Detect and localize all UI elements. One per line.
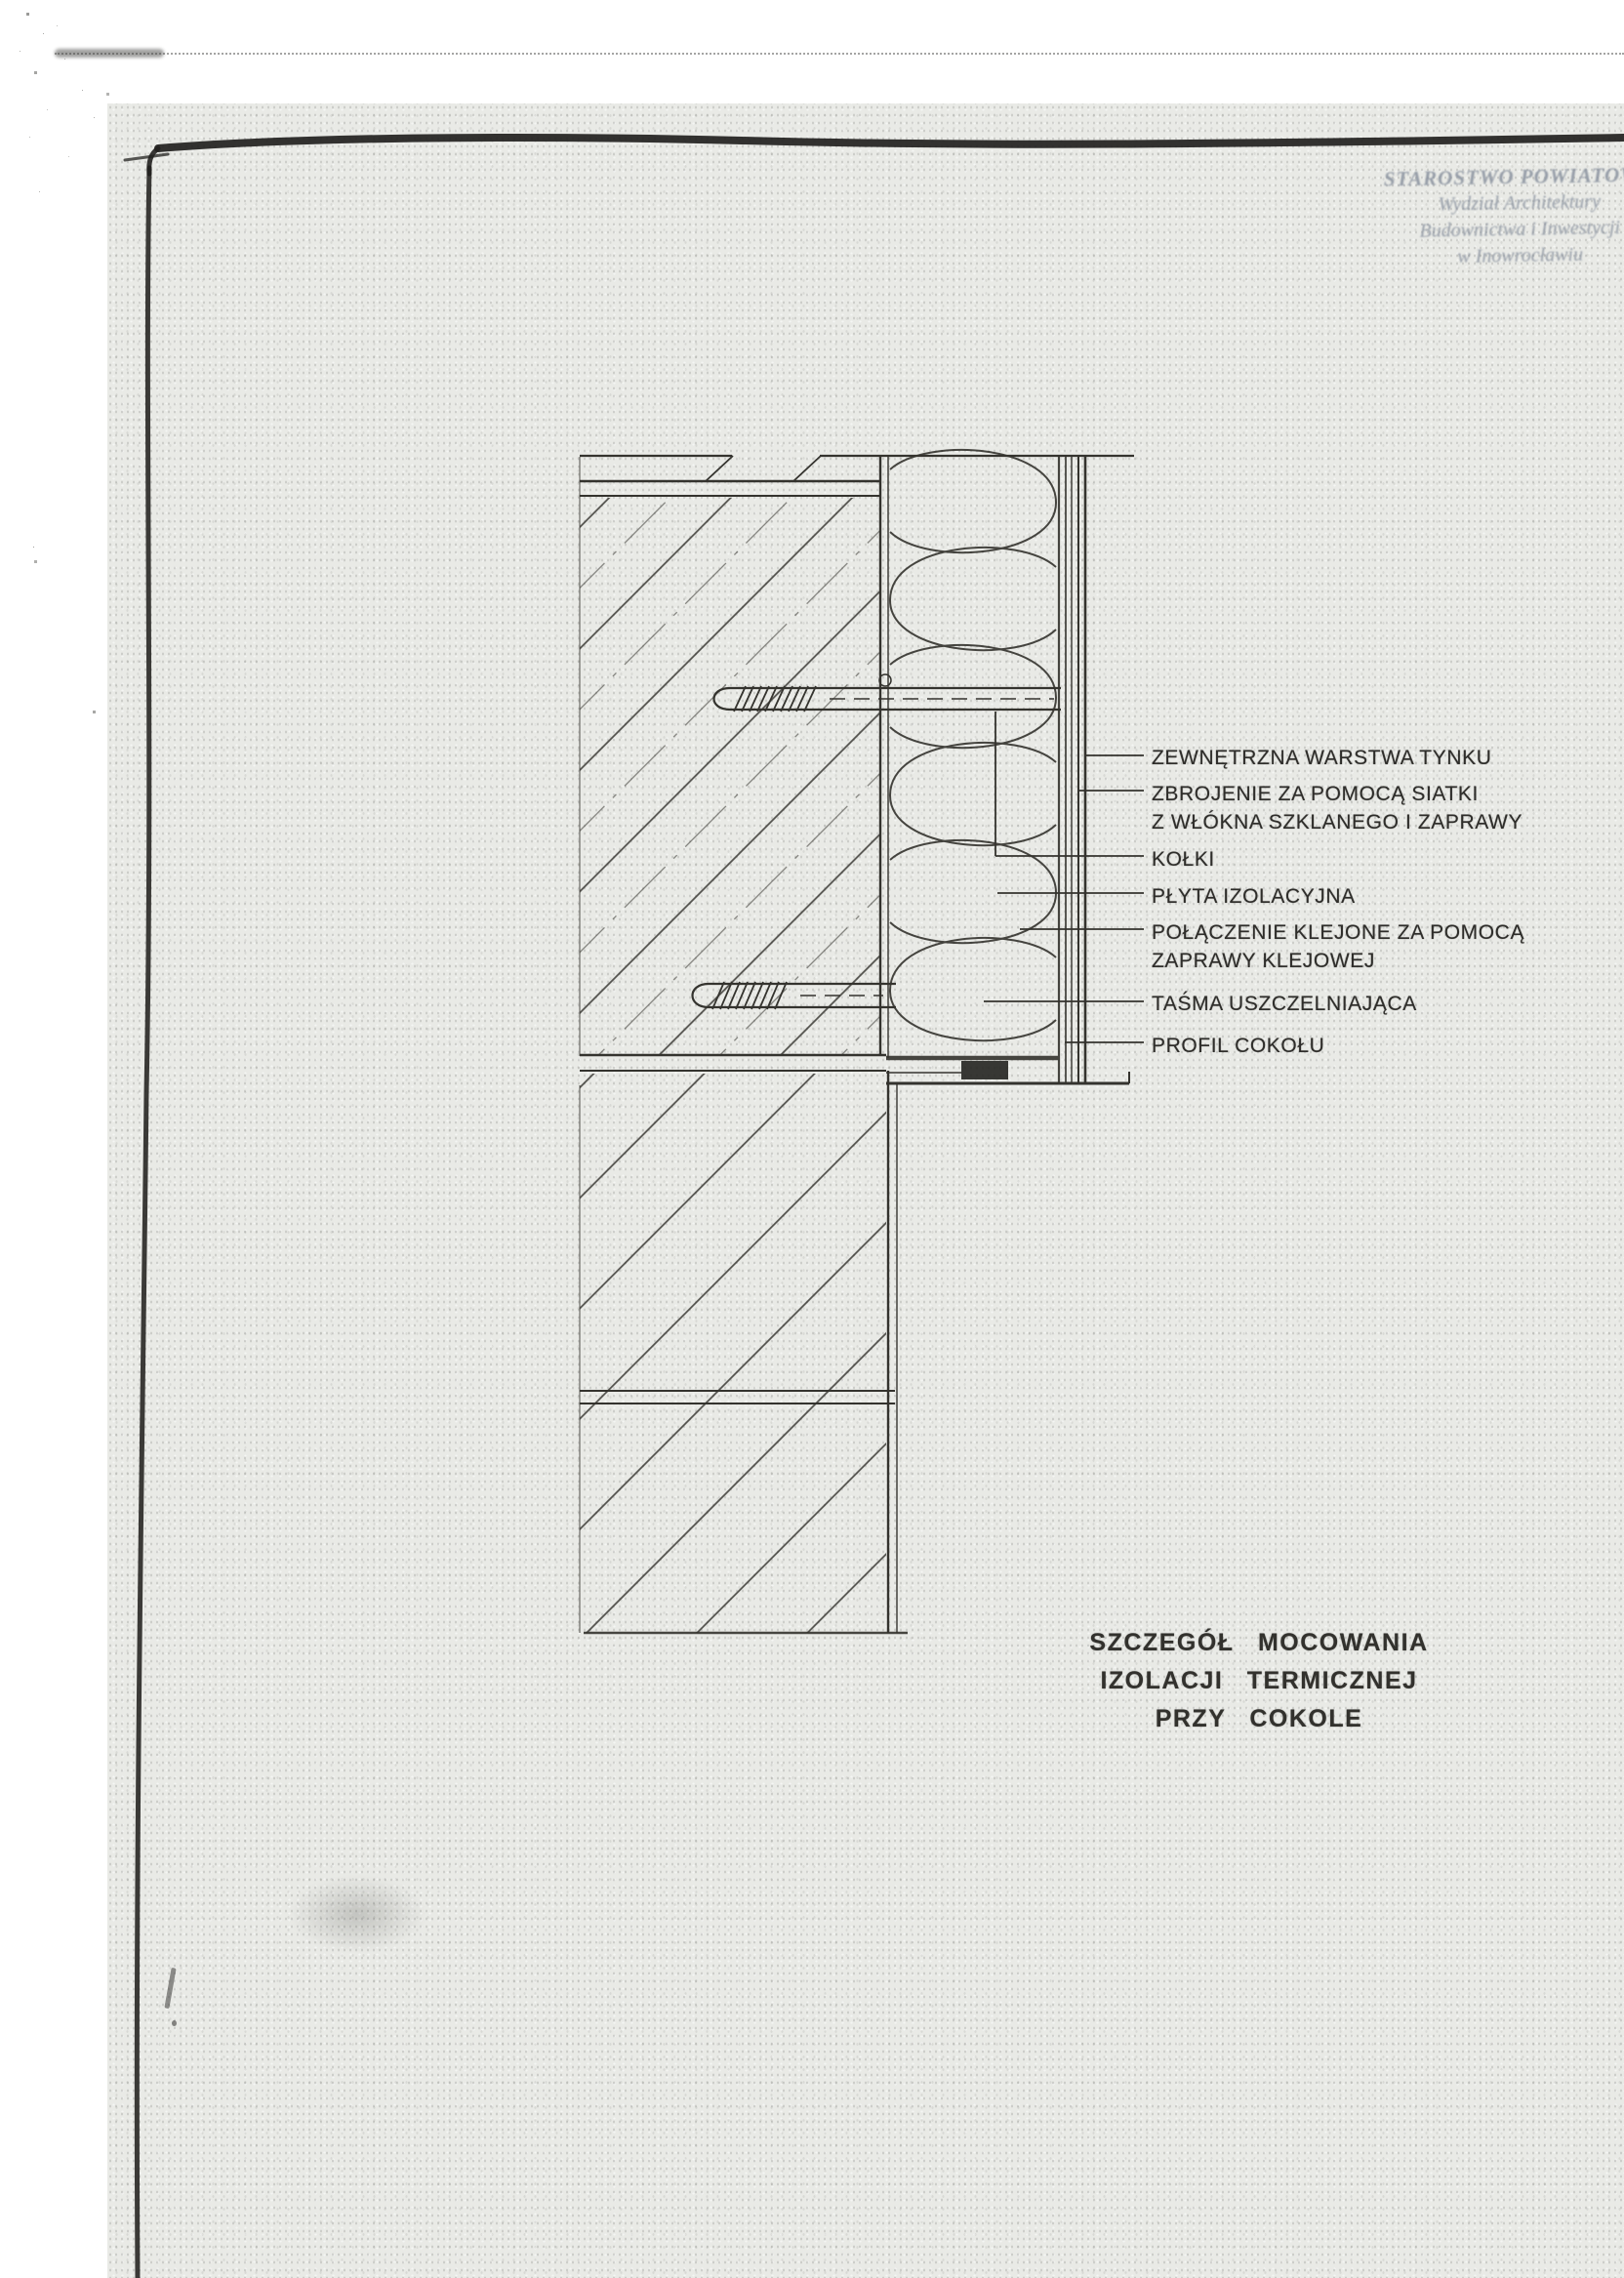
- scanned-drawing-page: ZEWNĘTRZNA WARSTWA TYNKU ZBROJENIE ZA PO…: [0, 0, 1624, 2278]
- callout-label-mesh-reinforcement: ZBROJENIE ZA POMOCĄ SIATKI Z WŁÓKNA SZKL…: [1152, 780, 1522, 836]
- sealing-tape: [961, 1061, 1008, 1079]
- drawing-title-line: PRZY COKOLE: [1015, 1700, 1503, 1738]
- callout-label-insulation-board: PŁYTA IZOLACYJNA: [1152, 882, 1356, 911]
- callout-label-dowels: KOŁKI: [1152, 845, 1215, 874]
- construction-detail-drawing: [0, 0, 1624, 2278]
- drawing-title-line: SZCZEGÓŁ MOCOWANIA: [1015, 1624, 1503, 1662]
- callout-label-line: Z WŁÓKNA SZKLANEGO I ZAPRAWY: [1152, 808, 1522, 836]
- callout-label-line: ZAPRAWY KLEJOWEJ: [1152, 947, 1524, 975]
- office-stamp: STAROSTWO POWIATOWE Wydział Architektury…: [1358, 161, 1624, 272]
- render-layers: [1066, 456, 1085, 1083]
- callout-label-outer-render: ZEWNĘTRZNA WARSTWA TYNKU: [1152, 744, 1491, 772]
- wall-section-lower: [580, 1071, 908, 1633]
- drawing-title-line: IZOLACJI TERMICZNEJ: [1015, 1662, 1503, 1700]
- pencil-smudge: [289, 1876, 426, 1952]
- callout-label-sealing-tape: TAŚMA USZCZELNIAJĄCA: [1152, 990, 1417, 1018]
- leader-lines: [984, 712, 1144, 1042]
- wall-section-upper: [580, 456, 1134, 1071]
- callout-label-line: ZBROJENIE ZA POMOCĄ SIATKI: [1152, 780, 1522, 808]
- callout-label-adhesive-joint: POŁĄCZENIE KLEJONE ZA POMOCĄ ZAPRAWY KLE…: [1152, 918, 1524, 975]
- callout-label-plinth-profile: PROFIL COKOŁU: [1152, 1032, 1324, 1060]
- ink-mark-dot: [172, 2020, 177, 2026]
- drawing-title: SZCZEGÓŁ MOCOWANIA IZOLACJI TERMICZNEJ P…: [1015, 1624, 1503, 1738]
- stamp-department2: Budownictwa i Inwestycji: [1359, 214, 1624, 246]
- stamp-city: w Inowrocławiu: [1359, 240, 1624, 272]
- callout-label-line: POŁĄCZENIE KLEJONE ZA POMOCĄ: [1152, 918, 1524, 947]
- insulation-layer: [886, 450, 1059, 1083]
